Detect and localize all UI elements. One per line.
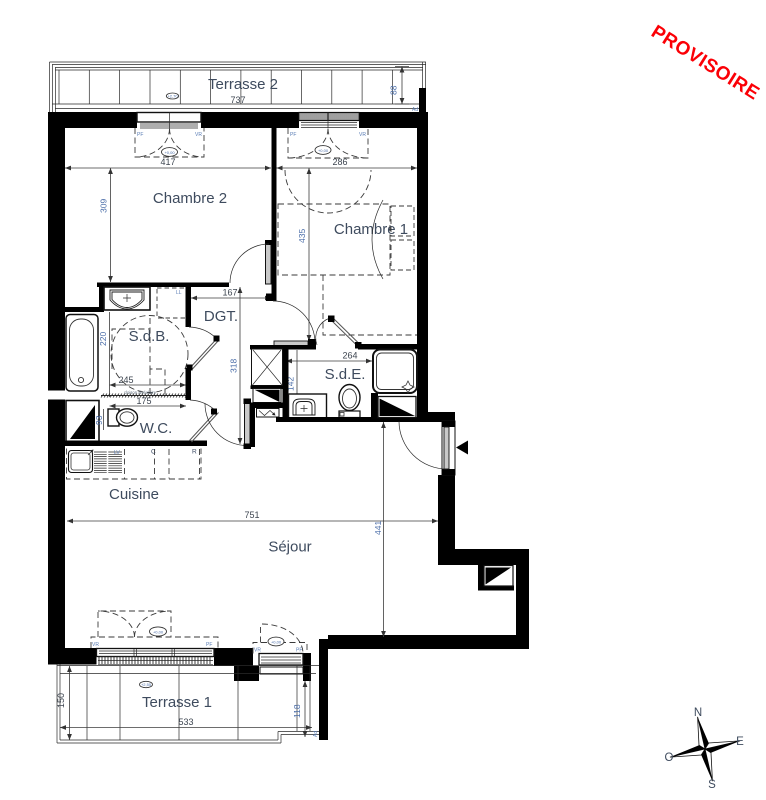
- svg-text:PF: PF: [206, 642, 212, 648]
- svg-text:417: 417: [160, 157, 175, 167]
- svg-text:+0,00: +0,00: [153, 629, 164, 634]
- svg-text:Terrasse 1: Terrasse 1: [142, 694, 212, 711]
- svg-text:Terrasse 2: Terrasse 2: [208, 76, 278, 93]
- svg-text:N: N: [694, 707, 702, 719]
- svg-text:VR: VR: [92, 642, 99, 648]
- svg-text:+0,00: +0,00: [271, 639, 282, 644]
- svg-text:Ad: Ad: [313, 731, 319, 737]
- svg-text:VR: VR: [254, 648, 261, 654]
- svg-text:Chambre 1: Chambre 1: [334, 221, 408, 238]
- svg-text:286: 286: [332, 157, 347, 167]
- svg-text:W.C.: W.C.: [140, 420, 173, 437]
- svg-text:309: 309: [99, 199, 109, 213]
- svg-text:PF: PF: [290, 132, 296, 138]
- svg-text:Chambre 2: Chambre 2: [153, 190, 227, 207]
- svg-text:DGT.: DGT.: [204, 308, 238, 325]
- svg-text:Cuisine: Cuisine: [109, 486, 159, 503]
- svg-text:+0,00: +0,00: [164, 150, 175, 155]
- svg-text:175: 175: [136, 396, 151, 406]
- svg-text:VR: VR: [195, 132, 202, 138]
- svg-text:737: 737: [230, 95, 245, 105]
- svg-text:C: C: [151, 449, 156, 456]
- svg-text:S: S: [708, 779, 716, 791]
- svg-text:+2,70: +2,70: [167, 94, 178, 99]
- svg-text:167: 167: [222, 288, 237, 298]
- svg-text:S.d.B.: S.d.B.: [129, 328, 170, 345]
- svg-text:VR: VR: [359, 132, 366, 138]
- svg-text:LV: LV: [114, 450, 120, 456]
- svg-text:118: 118: [292, 704, 302, 718]
- svg-text:435: 435: [297, 229, 307, 243]
- svg-text:441: 441: [373, 521, 383, 535]
- svg-text:318: 318: [229, 359, 239, 373]
- svg-text:S.d.E.: S.d.E.: [325, 366, 366, 383]
- svg-text:O: O: [665, 752, 674, 764]
- svg-text:93: 93: [94, 415, 104, 425]
- svg-text:E: E: [736, 736, 744, 748]
- svg-text:751: 751: [244, 510, 259, 520]
- svg-text:PF: PF: [137, 132, 143, 138]
- svg-text:PF: PF: [296, 648, 302, 654]
- svg-text:+2,55: +2,55: [141, 682, 152, 687]
- svg-text:533: 533: [178, 717, 193, 727]
- svg-text:LL: LL: [176, 290, 182, 296]
- svg-text:220: 220: [98, 332, 108, 346]
- svg-text:88: 88: [389, 85, 399, 95]
- svg-text:150: 150: [56, 693, 66, 708]
- svg-text:R: R: [192, 449, 197, 456]
- svg-text:264: 264: [342, 351, 357, 361]
- svg-text:+0,00: +0,00: [318, 148, 329, 153]
- svg-text:245: 245: [118, 375, 133, 385]
- svg-text:Séjour: Séjour: [268, 539, 311, 556]
